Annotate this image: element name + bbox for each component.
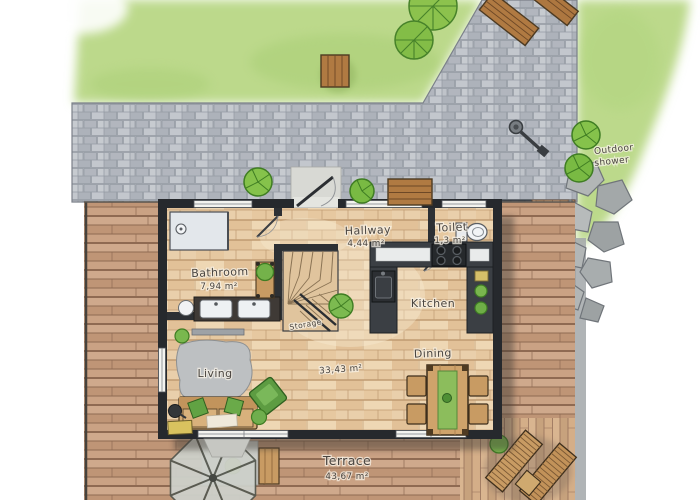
terrace-label: Terrace xyxy=(322,453,371,468)
dining-chair-icon xyxy=(407,376,426,396)
wall-shelf-icon xyxy=(192,329,244,335)
bathroom-label: Bathroom xyxy=(191,265,249,280)
yellow-table-icon xyxy=(168,420,193,434)
living-label: Living xyxy=(197,367,232,380)
house: Storage xyxy=(158,177,502,457)
toilet-label: Toilet xyxy=(435,220,468,234)
floor-plan-canvas: Outdoor shower xyxy=(0,0,700,500)
bush-icon xyxy=(565,154,593,182)
terrace-step xyxy=(204,439,250,457)
bench-icon xyxy=(388,179,432,205)
potted-plant-icon xyxy=(175,329,189,343)
staircase: Storage xyxy=(283,251,338,332)
hallway-label: Hallway xyxy=(345,223,392,238)
dining-chair-icon xyxy=(469,376,488,396)
entry-pad xyxy=(291,167,341,208)
dining-label: Dining xyxy=(414,346,452,360)
dining-chair-icon xyxy=(407,404,426,424)
terrace-area-label: 43,67 m² xyxy=(325,472,368,482)
kitchen-label: Kitchen xyxy=(411,297,455,310)
bush-icon xyxy=(572,121,600,149)
toilet-area-label: 1,3 m² xyxy=(434,236,465,246)
floor-plan-illustration: Outdoor shower xyxy=(0,0,700,500)
throw-blanket xyxy=(207,414,238,428)
hallway-area-label: 4,44 m² xyxy=(347,239,384,249)
bush-icon xyxy=(244,168,272,196)
tree-icon xyxy=(395,21,433,59)
hallway-plant-icon xyxy=(329,294,353,318)
potted-plant-icon xyxy=(252,410,267,425)
centerpiece-icon xyxy=(443,394,452,403)
bush-icon xyxy=(350,179,374,203)
potted-plant-icon xyxy=(257,264,274,281)
stool-icon xyxy=(179,301,194,316)
herb-pot-icon xyxy=(475,302,487,314)
kitchen-board-icon xyxy=(475,271,488,281)
herb-pot-icon xyxy=(475,285,487,297)
side-table-icon xyxy=(259,448,279,484)
bathroom-area-label: 7,94 m² xyxy=(200,282,237,292)
dining-chair-icon xyxy=(469,404,488,424)
